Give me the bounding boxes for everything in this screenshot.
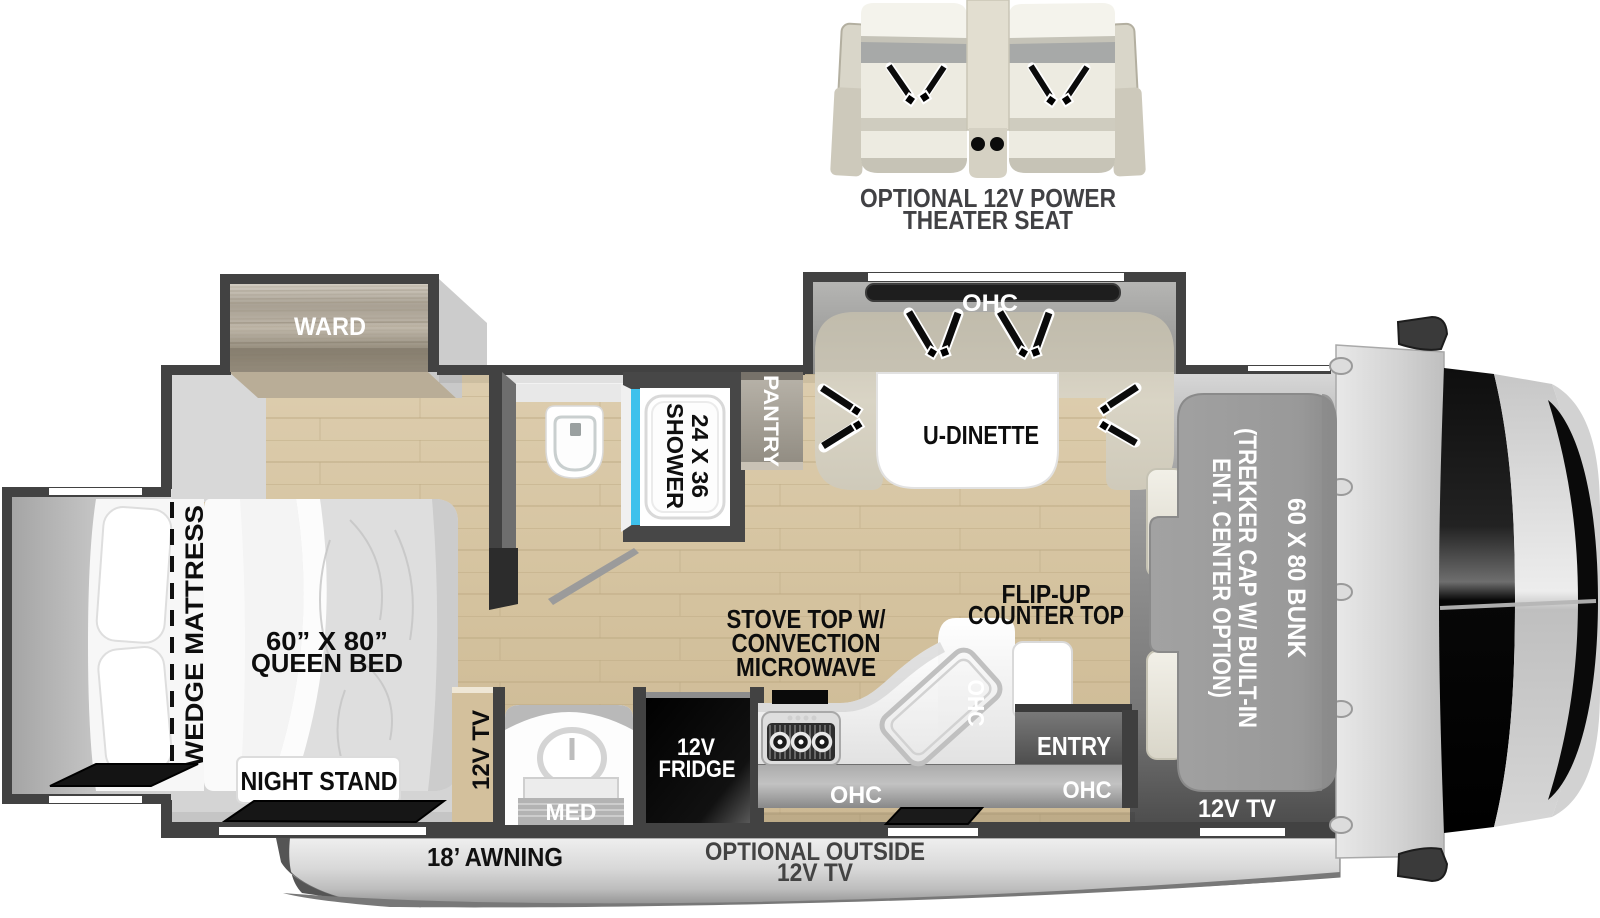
svg-text:OHC: OHC — [963, 680, 989, 727]
svg-text:FRIDGE: FRIDGE — [659, 756, 736, 783]
svg-text:PANTRY: PANTRY — [759, 375, 782, 467]
svg-text:WEDGE MATTRESS: WEDGE MATTRESS — [181, 505, 209, 767]
svg-text:NIGHT STAND: NIGHT STAND — [241, 766, 398, 796]
svg-text:MICROWAVE: MICROWAVE — [736, 652, 876, 682]
svg-text:MED: MED — [546, 799, 597, 825]
svg-text:12V TV: 12V TV — [777, 859, 853, 887]
svg-text:(TREKKER CAP W/ BUILT-IN: (TREKKER CAP W/ BUILT-IN — [1233, 428, 1261, 728]
svg-text:24 X 36: 24 X 36 — [687, 414, 713, 498]
svg-text:SHOWER: SHOWER — [662, 403, 688, 509]
svg-text:WARD: WARD — [294, 313, 366, 341]
svg-text:ENTRY: ENTRY — [1037, 731, 1111, 761]
svg-text:THEATER SEAT: THEATER SEAT — [903, 205, 1073, 235]
svg-text:OHC: OHC — [962, 290, 1018, 317]
svg-text:ENT. CENTER OPTION): ENT. CENTER OPTION) — [1207, 458, 1235, 698]
svg-text:COUNTER TOP: COUNTER TOP — [968, 600, 1124, 630]
svg-text:18’ AWNING: 18’ AWNING — [427, 842, 563, 872]
svg-text:U-DINETTE: U-DINETTE — [923, 420, 1039, 450]
svg-text:12V TV: 12V TV — [1198, 795, 1276, 823]
svg-text:60 X 80 BUNK: 60 X 80 BUNK — [1282, 498, 1310, 658]
svg-text:OHC: OHC — [830, 782, 882, 809]
svg-text:QUEEN BED: QUEEN BED — [251, 648, 403, 678]
svg-text:12V TV: 12V TV — [468, 710, 495, 790]
svg-text:OHC: OHC — [1063, 777, 1112, 804]
